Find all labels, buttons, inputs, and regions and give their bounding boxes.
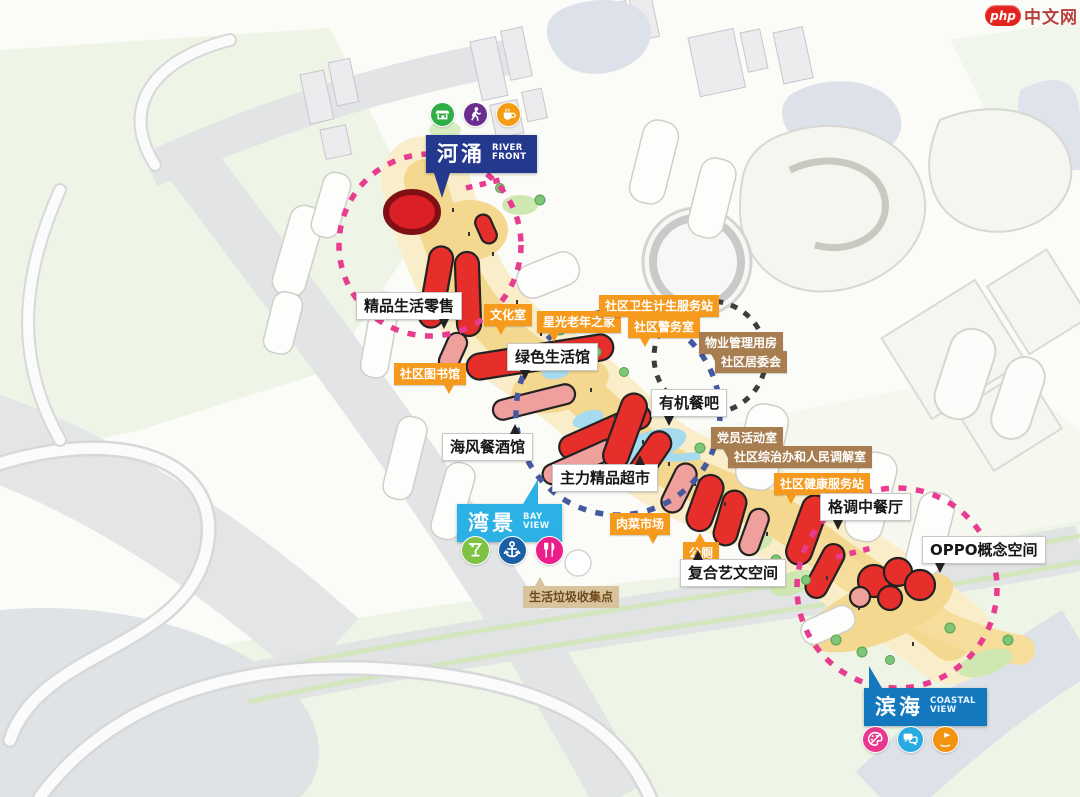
river-front-icons xyxy=(430,102,521,127)
label-art-space: 复合艺文空间 xyxy=(680,559,786,587)
label-wellness-station: 社区健康服务站 xyxy=(774,473,870,495)
label-waste-point: 生活垃圾收集点 xyxy=(523,586,619,608)
label-health-station: 社区卫生计生服务站 xyxy=(599,295,719,317)
label-sea-restaurant: 海风餐酒馆 xyxy=(442,433,533,461)
label-green-hall: 绿色生活馆 xyxy=(507,343,598,371)
site-watermark: php 中文网 xyxy=(985,3,1078,28)
bay-view-icons xyxy=(461,536,564,565)
label-police-room: 社区警务室 xyxy=(628,316,700,338)
label-market: 肉菜市场 xyxy=(610,513,670,535)
php-logo: php xyxy=(985,5,1021,26)
label-retail: 精品生活零售 xyxy=(356,292,462,320)
market-icon xyxy=(430,102,455,127)
river-front-badge: 河涌 RIVER FRONT xyxy=(426,135,537,173)
leisure-flag-icon xyxy=(932,726,959,753)
cafe-icon xyxy=(496,102,521,127)
chat-icon xyxy=(897,726,924,753)
label-organic-bar: 有机餐吧 xyxy=(651,389,727,417)
watermark-text: 中文网 xyxy=(1024,3,1078,28)
label-supermarket: 主力精品超市 xyxy=(552,464,658,492)
river-front-zh: 河涌 xyxy=(437,138,485,168)
coastal-view-icons xyxy=(862,726,959,753)
pedestrian-icon xyxy=(463,102,488,127)
label-mediation-room: 社区综治办和人民调解室 xyxy=(728,446,872,468)
label-culture-room: 文化室 xyxy=(484,304,532,326)
bay-view-zh: 湾景 xyxy=(468,507,516,537)
coastal-view-badge: 滨海 COASTAL VIEW xyxy=(864,688,987,726)
art-palette-icon xyxy=(862,726,889,753)
label-committee: 社区居委会 xyxy=(715,351,787,373)
coastal-view-en: COASTAL VIEW xyxy=(930,697,978,716)
bay-view-en: BAY VIEW xyxy=(523,513,553,532)
label-oppo-space: OPPO概念空间 xyxy=(922,536,1046,564)
site-plan-map xyxy=(0,0,1080,797)
river-front-en: RIVER FRONT xyxy=(492,144,528,163)
coastal-view-zh: 滨海 xyxy=(875,691,923,721)
masterplan-canvas: 河涌 RIVER FRONT 湾景 BAY VIEW 滨海 COASTAL VI… xyxy=(0,0,1080,797)
label-chinese-restaurant: 格调中餐厅 xyxy=(820,493,911,521)
dining-icon xyxy=(535,536,564,565)
label-library: 社区图书馆 xyxy=(394,363,466,385)
cocktail-icon xyxy=(461,536,490,565)
anchor-icon xyxy=(498,536,527,565)
